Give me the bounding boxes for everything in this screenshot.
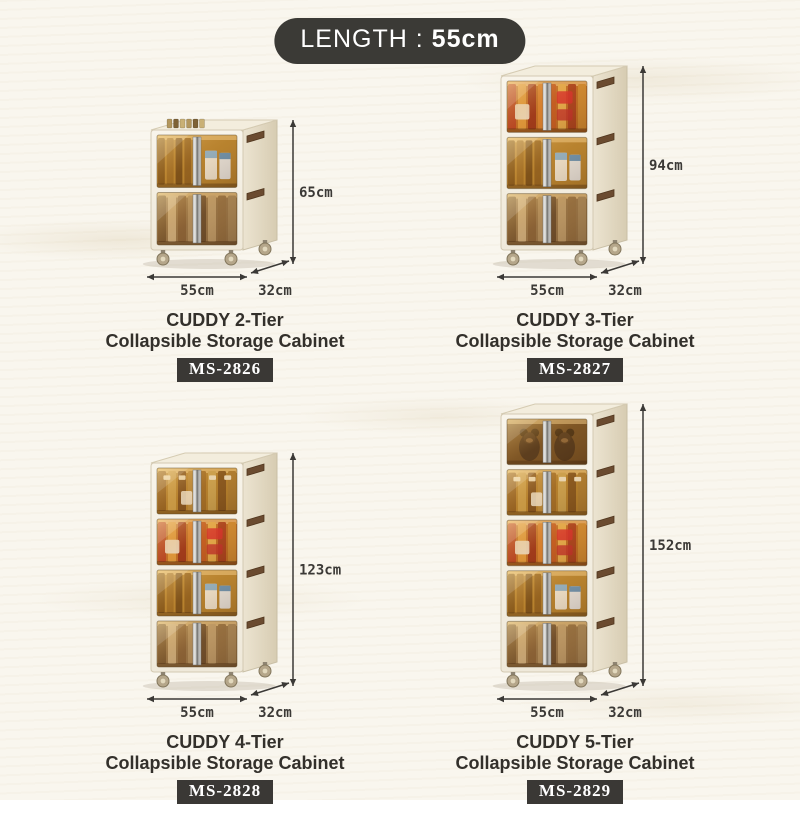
depth-dimension-label: 32cm [258, 283, 292, 299]
cabinet-illustration: 123cm55cm32cm [121, 447, 353, 724]
cabinet-illustration: 152cm55cm32cm [471, 398, 703, 724]
product-caption: CUDDY 4-Tier Collapsible Storage Cabinet… [105, 724, 344, 816]
model-badge: MS-2826 [177, 358, 273, 382]
cans-on-top [180, 119, 185, 128]
depth-dimension-label: 32cm [258, 705, 292, 721]
length-badge: LENGTH :55cm [274, 18, 525, 64]
cans-on-top [187, 119, 192, 128]
product-cell: 94cm55cm32cm CUDDY 3-Tier Collapsible St… [400, 60, 750, 394]
cans-on-top [193, 119, 198, 128]
product-title: CUDDY 4-Tier [105, 732, 344, 753]
product-cell: 123cm55cm32cm CUDDY 4-Tier Collapsible S… [50, 398, 400, 816]
product-title: CUDDY 2-Tier [105, 310, 344, 331]
cans-on-top [174, 119, 179, 128]
page-background: LENGTH :55cm 65cm55cm32cm CUDDY 2-Tier C… [0, 0, 800, 800]
cabinet-illustration: 94cm55cm32cm [471, 60, 703, 302]
height-dimension-label: 65cm [299, 185, 333, 201]
width-dimension-label: 55cm [180, 705, 214, 721]
height-dimension-label: 152cm [649, 538, 691, 554]
model-badge: MS-2828 [177, 780, 273, 804]
product-figure: 152cm55cm32cm [400, 398, 750, 724]
cans-on-top [200, 119, 205, 128]
model-badge: MS-2829 [527, 780, 623, 804]
length-label: LENGTH : [300, 25, 423, 53]
product-subtitle: Collapsible Storage Cabinet [105, 331, 344, 352]
height-dimension-label: 123cm [299, 563, 341, 579]
product-figure: 65cm55cm32cm [50, 60, 400, 302]
width-dimension-label: 55cm [530, 705, 564, 721]
product-cell: 65cm55cm32cm CUDDY 2-Tier Collapsible St… [50, 60, 400, 394]
product-subtitle: Collapsible Storage Cabinet [455, 753, 694, 774]
product-title: CUDDY 3-Tier [455, 310, 694, 331]
product-caption: CUDDY 3-Tier Collapsible Storage Cabinet… [455, 302, 694, 394]
cans-on-top [167, 119, 172, 128]
depth-dimension-label: 32cm [608, 705, 642, 721]
width-dimension-label: 55cm [530, 283, 564, 299]
length-value: 55cm [432, 25, 500, 53]
cabinet-side-panel [593, 66, 627, 250]
product-subtitle: Collapsible Storage Cabinet [455, 331, 694, 352]
product-caption: CUDDY 5-Tier Collapsible Storage Cabinet… [455, 724, 694, 816]
cabinet-illustration: 65cm55cm32cm [121, 114, 353, 302]
cabinet-side-panel [593, 404, 627, 672]
height-dimension-label: 94cm [649, 158, 683, 174]
product-figure: 94cm55cm32cm [400, 60, 750, 302]
product-title: CUDDY 5-Tier [455, 732, 694, 753]
model-badge: MS-2827 [527, 358, 623, 382]
product-figure: 123cm55cm32cm [50, 398, 400, 724]
cabinet-side-panel [243, 453, 277, 672]
product-cell: 152cm55cm32cm CUDDY 5-Tier Collapsible S… [400, 398, 750, 816]
depth-dimension-label: 32cm [608, 283, 642, 299]
product-subtitle: Collapsible Storage Cabinet [105, 753, 344, 774]
product-caption: CUDDY 2-Tier Collapsible Storage Cabinet… [105, 302, 344, 394]
product-grid: 65cm55cm32cm CUDDY 2-Tier Collapsible St… [50, 60, 750, 816]
width-dimension-label: 55cm [180, 283, 214, 299]
